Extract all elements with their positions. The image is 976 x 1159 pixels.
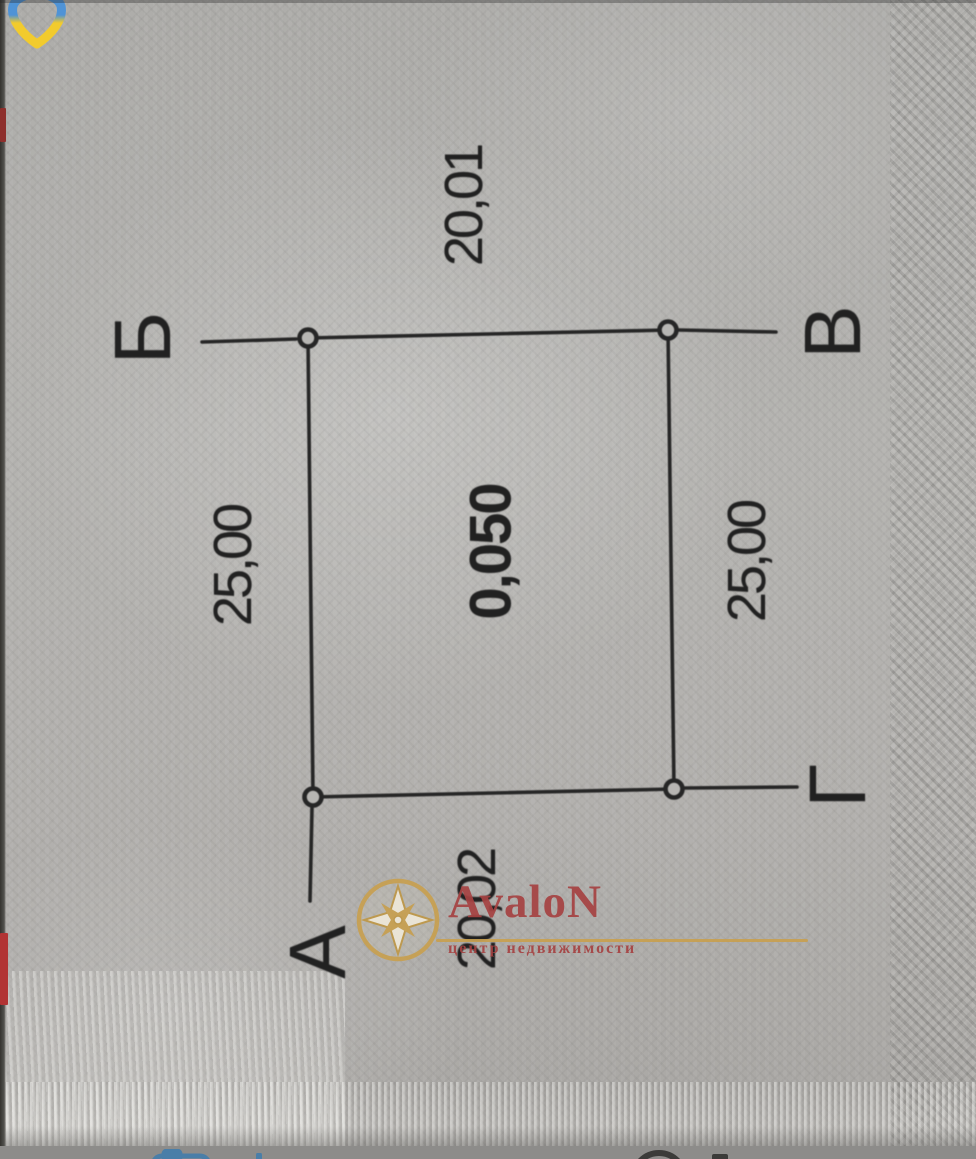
- scanned-plan-photo: Б В Г А 20,01 25,00 25,00 20,02 0,050 Av…: [0, 0, 976, 1146]
- red-edge-mark-top: [0, 108, 6, 142]
- watermark-tagline-text: центр недвижимости: [448, 940, 636, 958]
- dimension-right: 25,00: [716, 502, 778, 622]
- corner-point-b: [300, 330, 317, 347]
- watermark: AvaloN центр недвижимости: [330, 858, 830, 983]
- dimension-left: 25,00: [202, 506, 264, 626]
- photo-top-edge: [0, 0, 976, 3]
- add-icon[interactable]: [246, 1153, 272, 1159]
- extension-line-a: [310, 808, 312, 901]
- extension-line-g: [685, 787, 797, 788]
- corner-label-v: В: [787, 305, 879, 358]
- boundary-line-left: [308, 338, 313, 797]
- corner-point-g: [666, 781, 683, 798]
- photo-viewer-screen: Б В Г А 20,01 25,00 25,00 20,02 0,050 Av…: [0, 0, 976, 1159]
- corner-label-b: Б: [97, 312, 189, 365]
- attachment-toolbar: [0, 1146, 976, 1159]
- red-edge-mark-bottom: [0, 933, 8, 1005]
- watermark-brand-text: AvaloN: [448, 875, 602, 929]
- ukraine-pin-icon: [4, 0, 70, 52]
- stop-square-icon[interactable]: [712, 1154, 728, 1159]
- extension-line-v: [679, 330, 776, 332]
- compass-rose-icon: [354, 876, 442, 964]
- boundary-line-right: [668, 330, 674, 789]
- corner-label-g: Г: [792, 764, 884, 807]
- boundary-line-bottom: [313, 789, 674, 797]
- record-circle-icon[interactable]: [628, 1148, 690, 1159]
- corner-point-a: [305, 789, 322, 806]
- extension-line-b: [202, 339, 296, 342]
- camera-icon[interactable]: [150, 1149, 212, 1159]
- boundary-line-top: [308, 330, 668, 338]
- dimension-top: 20,01: [433, 146, 495, 266]
- corner-point-v: [660, 322, 677, 339]
- area-value: 0,050: [458, 484, 525, 619]
